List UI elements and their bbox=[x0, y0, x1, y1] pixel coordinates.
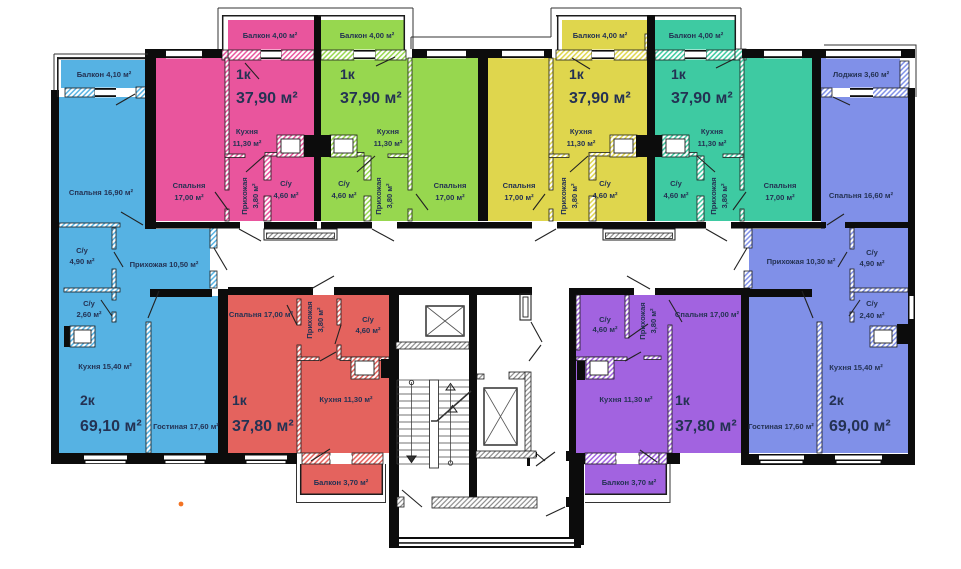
svg-text:Прихожая: Прихожая bbox=[240, 177, 249, 214]
svg-text:С/у: С/у bbox=[670, 179, 683, 188]
svg-text:Спальня 17,00 м²: Спальня 17,00 м² bbox=[229, 310, 294, 319]
svg-text:4,90 м²: 4,90 м² bbox=[69, 257, 95, 266]
svg-text:Гостиная 17,60 м²: Гостиная 17,60 м² bbox=[153, 422, 219, 431]
svg-text:69,00 м²: 69,00 м² bbox=[829, 418, 891, 435]
svg-text:Спальня: Спальня bbox=[434, 181, 467, 190]
svg-text:4,60 м²: 4,60 м² bbox=[355, 326, 381, 335]
svg-text:С/у: С/у bbox=[362, 315, 375, 324]
svg-text:17,00 м²: 17,00 м² bbox=[435, 193, 465, 202]
svg-text:11,30 м²: 11,30 м² bbox=[374, 139, 403, 148]
svg-text:3,80 м²: 3,80 м² bbox=[316, 307, 325, 333]
svg-text:2,60 м²: 2,60 м² bbox=[76, 310, 102, 319]
svg-text:С/у: С/у bbox=[866, 299, 879, 308]
svg-text:Балкон 4,00 м²: Балкон 4,00 м² bbox=[669, 31, 724, 40]
svg-text:3,80 м²: 3,80 м² bbox=[649, 308, 658, 334]
svg-text:Гостиная 17,60 м²: Гостиная 17,60 м² bbox=[748, 422, 814, 431]
svg-text:Балкон 4,00 м²: Балкон 4,00 м² bbox=[340, 31, 395, 40]
svg-text:1к: 1к bbox=[675, 392, 691, 408]
svg-text:37,90 м²: 37,90 м² bbox=[236, 90, 298, 107]
svg-text:Спальня: Спальня bbox=[764, 181, 797, 190]
svg-text:С/у: С/у bbox=[338, 179, 351, 188]
svg-text:Балкон 3,70 м²: Балкон 3,70 м² bbox=[602, 478, 657, 487]
svg-text:17,00 м²: 17,00 м² bbox=[504, 193, 534, 202]
svg-text:Прихожая: Прихожая bbox=[374, 177, 383, 214]
svg-text:Кухня: Кухня bbox=[570, 127, 592, 136]
svg-text:С/у: С/у bbox=[76, 246, 89, 255]
svg-text:4,60 м²: 4,60 м² bbox=[331, 191, 357, 200]
svg-text:С/у: С/у bbox=[83, 299, 96, 308]
svg-text:Прихожая: Прихожая bbox=[638, 302, 647, 339]
svg-text:Балкон 3,70 м²: Балкон 3,70 м² bbox=[314, 478, 369, 487]
svg-text:4,90 м²: 4,90 м² bbox=[859, 259, 885, 268]
svg-text:17,00 м²: 17,00 м² bbox=[765, 193, 795, 202]
svg-text:Спальня 16,90 м²: Спальня 16,90 м² bbox=[69, 188, 134, 197]
svg-text:С/у: С/у bbox=[599, 179, 612, 188]
svg-text:С/у: С/у bbox=[280, 179, 293, 188]
svg-text:Кухня 11,30 м²: Кухня 11,30 м² bbox=[319, 395, 373, 404]
svg-text:Спальня 16,60 м²: Спальня 16,60 м² bbox=[829, 191, 894, 200]
svg-text:Кухня 15,40 м²: Кухня 15,40 м² bbox=[78, 362, 132, 371]
svg-text:Прихожая: Прихожая bbox=[559, 177, 568, 214]
svg-text:37,90 м²: 37,90 м² bbox=[569, 90, 631, 107]
svg-text:37,90 м²: 37,90 м² bbox=[671, 90, 733, 107]
svg-text:1к: 1к bbox=[236, 66, 252, 82]
svg-text:11,30 м²: 11,30 м² bbox=[567, 139, 596, 148]
svg-text:4,60 м²: 4,60 м² bbox=[273, 191, 299, 200]
svg-text:Кухня: Кухня bbox=[377, 127, 399, 136]
svg-text:69,10 м²: 69,10 м² bbox=[80, 418, 142, 435]
svg-text:4,60 м²: 4,60 м² bbox=[592, 325, 618, 334]
svg-text:Прихожая 10,30 м²: Прихожая 10,30 м² bbox=[767, 257, 836, 266]
svg-text:2к: 2к bbox=[80, 392, 96, 408]
svg-text:Кухня 15,40 м²: Кухня 15,40 м² bbox=[829, 363, 883, 372]
svg-text:С/у: С/у bbox=[599, 315, 612, 324]
svg-text:4,60 м²: 4,60 м² bbox=[663, 191, 689, 200]
svg-text:Спальня: Спальня bbox=[503, 181, 536, 190]
svg-text:Кухня: Кухня bbox=[236, 127, 258, 136]
svg-text:37,90 м²: 37,90 м² bbox=[340, 90, 402, 107]
svg-text:С/у: С/у bbox=[866, 248, 879, 257]
svg-text:Прихожая: Прихожая bbox=[709, 177, 718, 214]
svg-text:Балкон 4,00 м²: Балкон 4,00 м² bbox=[573, 31, 628, 40]
svg-text:3,80 м²: 3,80 м² bbox=[720, 183, 729, 209]
svg-text:Балкон 4,00 м²: Балкон 4,00 м² bbox=[243, 31, 298, 40]
svg-text:37,80 м²: 37,80 м² bbox=[232, 418, 294, 435]
svg-text:2к: 2к bbox=[829, 392, 845, 408]
svg-text:11,30 м²: 11,30 м² bbox=[233, 139, 262, 148]
svg-text:Спальня: Спальня bbox=[173, 181, 206, 190]
svg-text:3,80 м²: 3,80 м² bbox=[570, 183, 579, 209]
svg-text:1к: 1к bbox=[569, 66, 585, 82]
svg-text:3,80 м²: 3,80 м² bbox=[385, 183, 394, 209]
svg-text:Спальня 17,00 м²: Спальня 17,00 м² bbox=[675, 310, 740, 319]
svg-text:Кухня 11,30 м²: Кухня 11,30 м² bbox=[599, 395, 653, 404]
svg-text:Прихожая: Прихожая bbox=[305, 301, 314, 338]
svg-text:1к: 1к bbox=[232, 392, 248, 408]
svg-text:3,80 м²: 3,80 м² bbox=[251, 183, 260, 209]
svg-text:Лоджия 3,60 м²: Лоджия 3,60 м² bbox=[833, 70, 890, 79]
svg-text:4,60 м²: 4,60 м² bbox=[592, 191, 618, 200]
svg-text:2,40 м²: 2,40 м² bbox=[859, 311, 885, 320]
svg-text:1к: 1к bbox=[671, 66, 687, 82]
svg-text:Кухня: Кухня bbox=[701, 127, 723, 136]
svg-text:17,00 м²: 17,00 м² bbox=[174, 193, 204, 202]
svg-text:Прихожая 10,50 м²: Прихожая 10,50 м² bbox=[130, 260, 199, 269]
svg-text:11,30 м²: 11,30 м² bbox=[698, 139, 727, 148]
svg-text:1к: 1к bbox=[340, 66, 356, 82]
svg-text:37,80 м²: 37,80 м² bbox=[675, 418, 737, 435]
svg-text:Балкон 4,10 м²: Балкон 4,10 м² bbox=[77, 70, 132, 79]
